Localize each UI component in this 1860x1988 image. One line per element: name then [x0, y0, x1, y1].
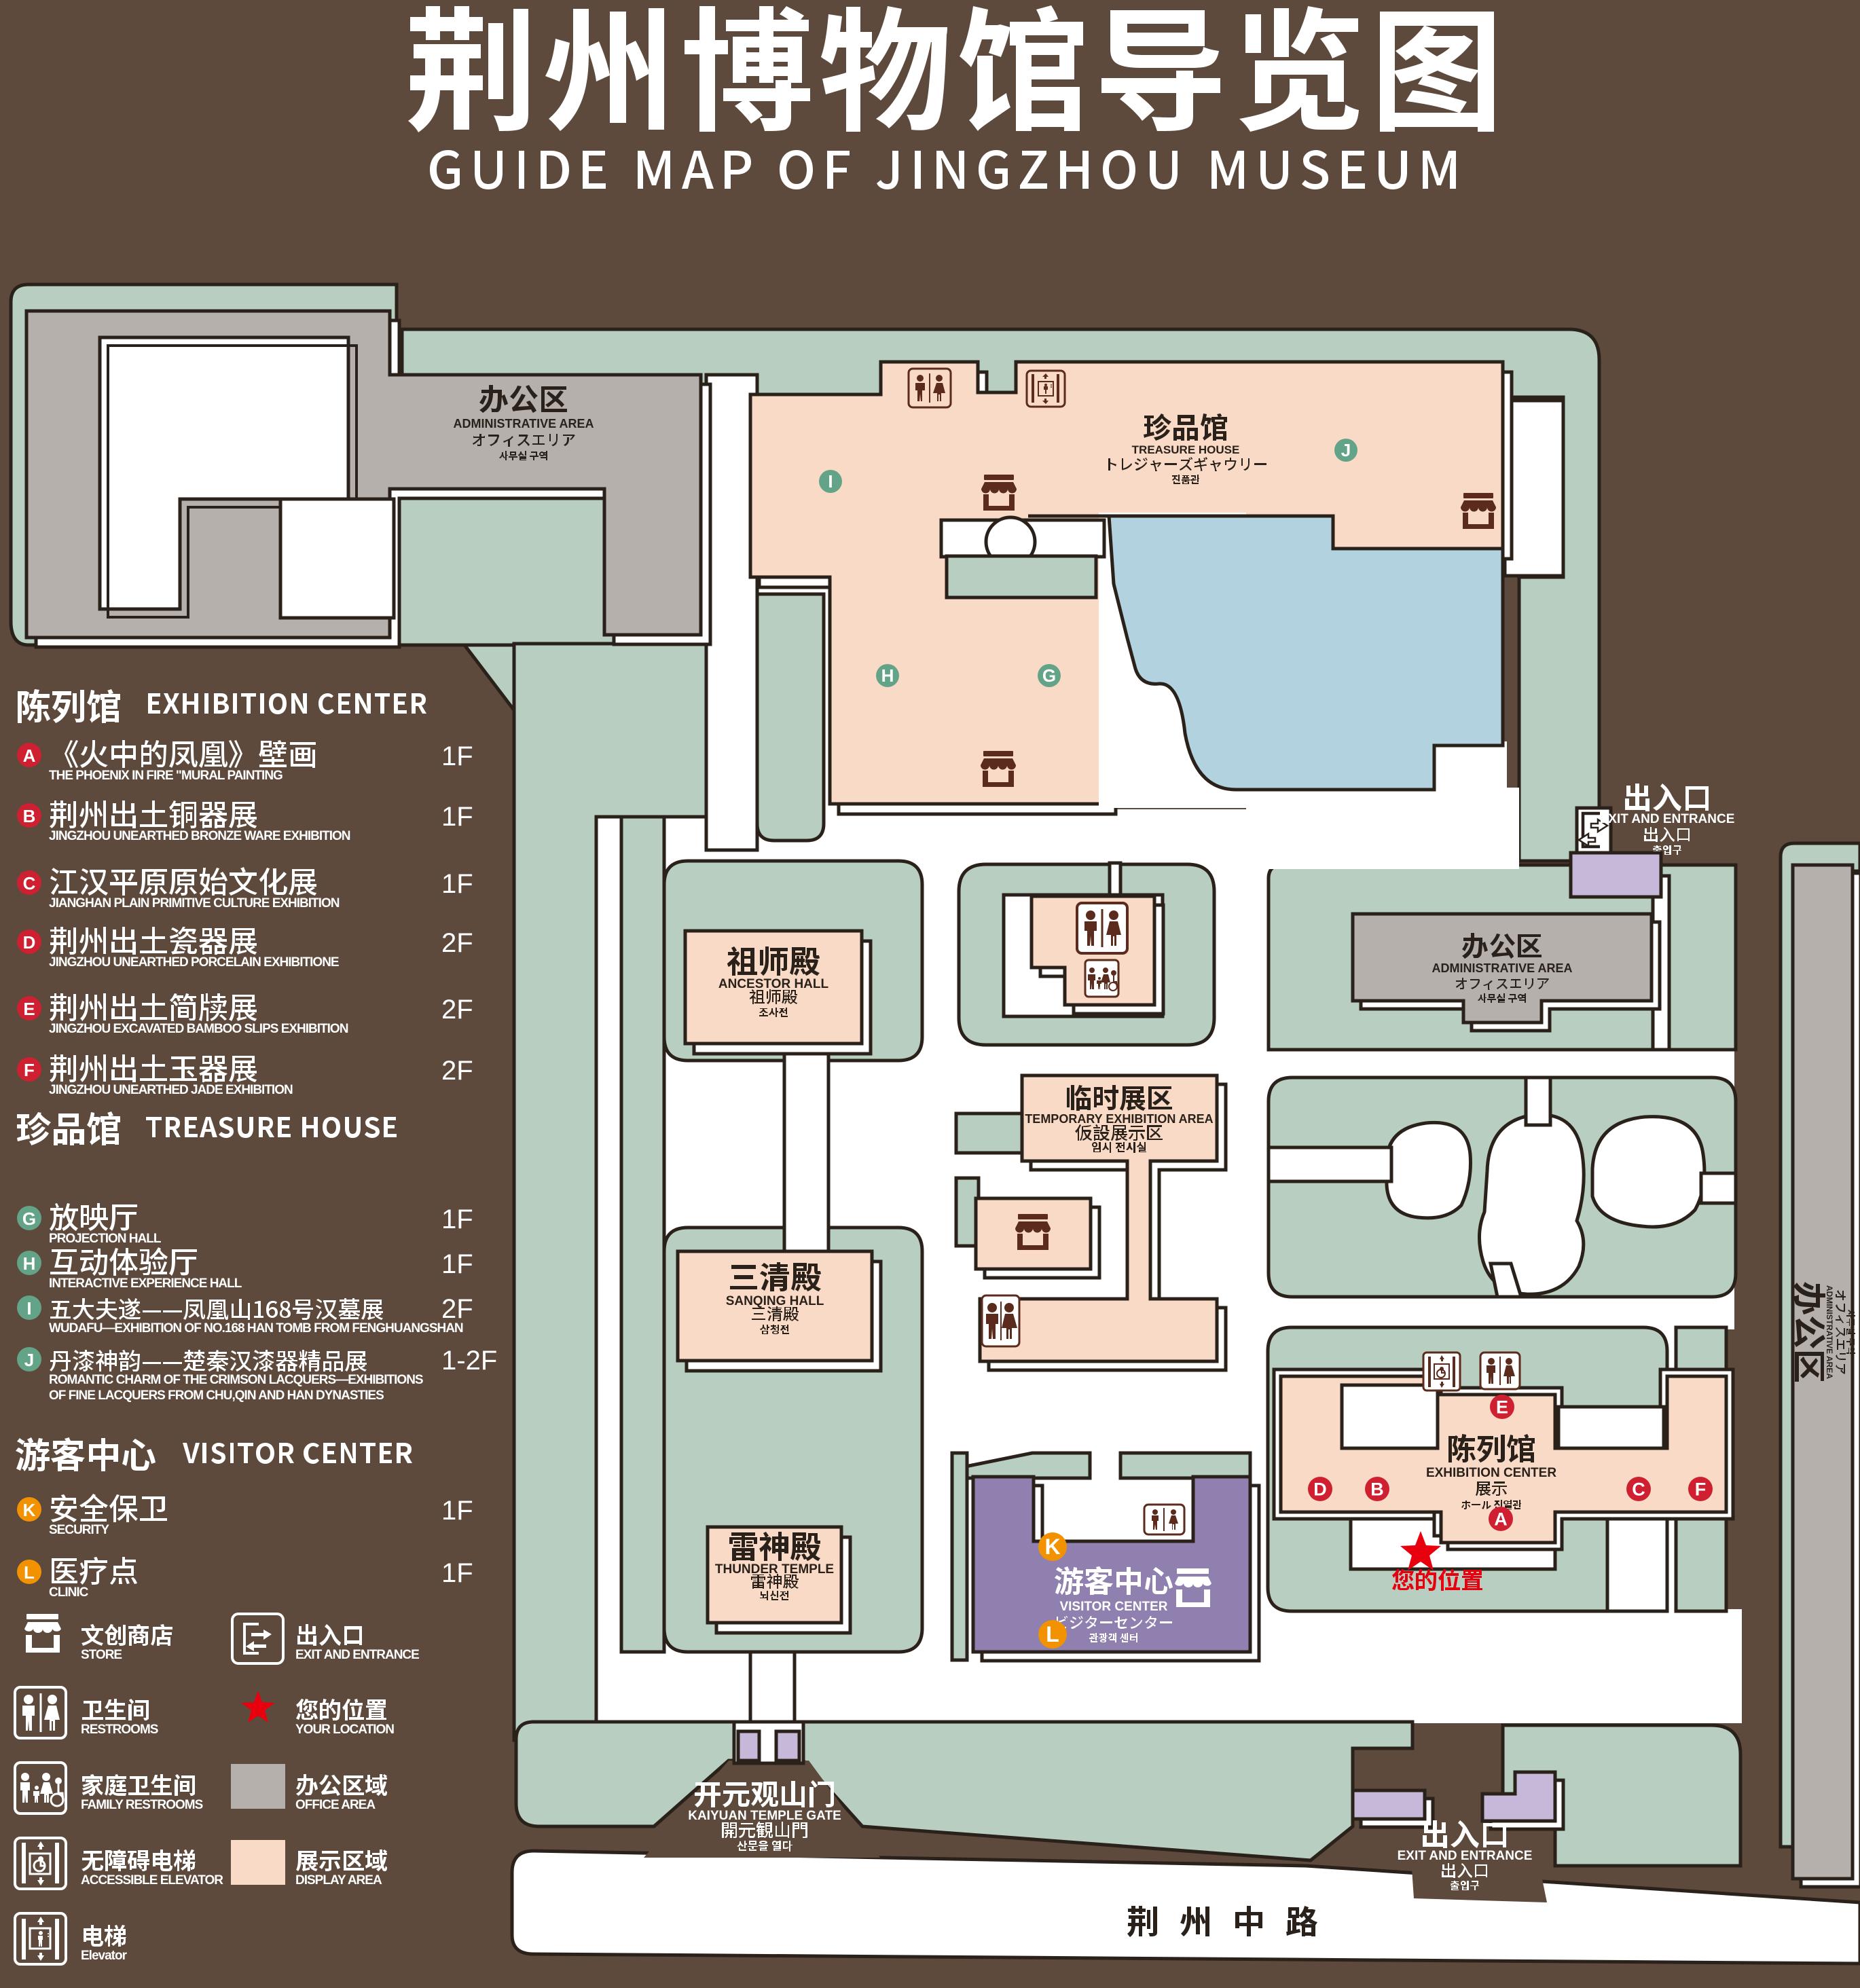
svg-text:THUNDER TEMPLE: THUNDER TEMPLE — [715, 1562, 834, 1577]
svg-text:A: A — [1494, 1509, 1508, 1529]
svg-text:I: I — [828, 471, 833, 492]
svg-text:THE PHOENIX IN FIRE "MURAL PAI: THE PHOENIX IN FIRE "MURAL PAINTING — [49, 769, 282, 783]
svg-text:RESTROOMS: RESTROOMS — [81, 1723, 158, 1737]
svg-text:KAIYUAN TEMPLE GATE: KAIYUAN TEMPLE GATE — [688, 1809, 841, 1823]
svg-text:ROMANTIC CHARM OF THE CRIMSON: ROMANTIC CHARM OF THE CRIMSON LACQUERS—E… — [49, 1373, 423, 1387]
svg-text:EXIT AND ENTRANCE: EXIT AND ENTRANCE — [295, 1648, 419, 1662]
svg-text:JIANGHAN PLAIN PRIMITIVE CULTU: JIANGHAN PLAIN PRIMITIVE CULTURE EXHIBIT… — [49, 896, 340, 910]
svg-text:INTERACTIVE EXPERIENCE HALL: INTERACTIVE EXPERIENCE HALL — [49, 1276, 242, 1291]
svg-text:JINGZHOU EXCAVATED BAMBOO SLIP: JINGZHOU EXCAVATED BAMBOO SLIPS EXHIBITI… — [49, 1022, 348, 1036]
svg-text:J: J — [1341, 440, 1351, 460]
svg-text:C: C — [1632, 1479, 1645, 1499]
svg-text:1F: 1F — [441, 1204, 473, 1234]
svg-text:STORE: STORE — [81, 1648, 122, 1662]
svg-text:TEMPORARY EXHIBITION AREA: TEMPORARY EXHIBITION AREA — [1025, 1112, 1213, 1126]
svg-text:CLINIC: CLINIC — [49, 1585, 89, 1600]
svg-text:G: G — [1042, 665, 1056, 686]
svg-text:1F: 1F — [441, 802, 473, 832]
svg-text:EXHIBITION CENTER: EXHIBITION CENTER — [1426, 1466, 1556, 1480]
svg-text:DISPLAY AREA: DISPLAY AREA — [295, 1873, 382, 1888]
svg-text:L: L — [24, 1562, 35, 1583]
svg-text:WUDAFU—EXHIBITION OF NO.168 HA: WUDAFU—EXHIBITION OF NO.168 HAN TOMB FRO… — [49, 1321, 463, 1336]
svg-text:EXIT AND ENTRANCE: EXIT AND ENTRANCE — [1398, 1849, 1533, 1863]
svg-text:2F: 2F — [441, 928, 473, 958]
svg-text:1F: 1F — [441, 1558, 473, 1588]
svg-text:VISITOR CENTER: VISITOR CENTER — [1059, 1600, 1167, 1614]
svg-text:2F: 2F — [441, 995, 473, 1025]
svg-text:J: J — [24, 1350, 34, 1370]
svg-text:2F: 2F — [441, 1056, 473, 1086]
svg-text:ADMINISTRATIVE AREA: ADMINISTRATIVE AREA — [1432, 961, 1573, 975]
svg-text:JINGZHOU UNEARTHED JADE EXHIBI: JINGZHOU UNEARTHED JADE EXHIBITION — [49, 1083, 293, 1097]
svg-text:G: G — [22, 1209, 36, 1229]
svg-text:2F: 2F — [441, 1294, 473, 1324]
svg-text:ADMINISTRATIVE AREA: ADMINISTRATIVE AREA — [1825, 1285, 1834, 1379]
svg-text:L: L — [1046, 1622, 1059, 1646]
svg-text:C: C — [23, 873, 36, 894]
svg-text:Elevator: Elevator — [81, 1949, 128, 1963]
svg-text:B: B — [23, 806, 36, 826]
svg-text:H: H — [881, 665, 894, 686]
svg-text:1F: 1F — [441, 869, 473, 899]
svg-text:A: A — [23, 745, 36, 766]
svg-text:ACCESSIBLE ELEVATOR: ACCESSIBLE ELEVATOR — [81, 1873, 223, 1888]
svg-text:SANQING HALL: SANQING HALL — [726, 1294, 824, 1308]
svg-text:1F: 1F — [441, 741, 473, 771]
svg-text:SECURITY: SECURITY — [49, 1523, 109, 1537]
svg-text:D: D — [1313, 1479, 1327, 1499]
svg-text:B: B — [1370, 1479, 1384, 1499]
svg-text:JINGZHOU UNEARTHED BRONZE WARE: JINGZHOU UNEARTHED BRONZE WARE EXHIBITIO… — [49, 829, 350, 843]
svg-text:D: D — [23, 932, 36, 953]
svg-text:JINGZHOU UNEARTHED PORCELAIN E: JINGZHOU UNEARTHED PORCELAIN EXHIBITIONE — [49, 955, 339, 970]
svg-text:F: F — [1695, 1479, 1707, 1499]
svg-text:YOUR LOCATION: YOUR LOCATION — [295, 1723, 394, 1737]
svg-text:H: H — [23, 1253, 36, 1274]
svg-text:ADMINISTRATIVE AREA: ADMINISTRATIVE AREA — [454, 417, 594, 430]
svg-text:1-2F: 1-2F — [441, 1346, 497, 1376]
svg-text:OFFICE AREA: OFFICE AREA — [295, 1798, 376, 1812]
svg-text:ANCESTOR HALL: ANCESTOR HALL — [718, 977, 829, 991]
svg-text:K: K — [23, 1500, 36, 1520]
svg-text:1F: 1F — [441, 1496, 473, 1526]
svg-text:TREASURE HOUSE: TREASURE HOUSE — [1132, 443, 1240, 456]
svg-text:EXIT AND ENTRANCE: EXIT AND ENTRANCE — [1600, 812, 1735, 826]
svg-text:1F: 1F — [441, 1249, 473, 1279]
svg-text:E: E — [23, 999, 35, 1019]
svg-text:F: F — [24, 1060, 35, 1080]
svg-text:FAMILY RESTROOMS: FAMILY RESTROOMS — [81, 1798, 203, 1812]
svg-text:OF FINE LACQUERS FROM CHU,QIN: OF FINE LACQUERS FROM CHU,QIN AND HAN DY… — [49, 1388, 384, 1403]
svg-text:I: I — [26, 1298, 31, 1319]
svg-text:K: K — [1044, 1534, 1060, 1559]
svg-text:PROJECTION HALL: PROJECTION HALL — [49, 1232, 162, 1246]
svg-text:E: E — [1496, 1397, 1508, 1417]
